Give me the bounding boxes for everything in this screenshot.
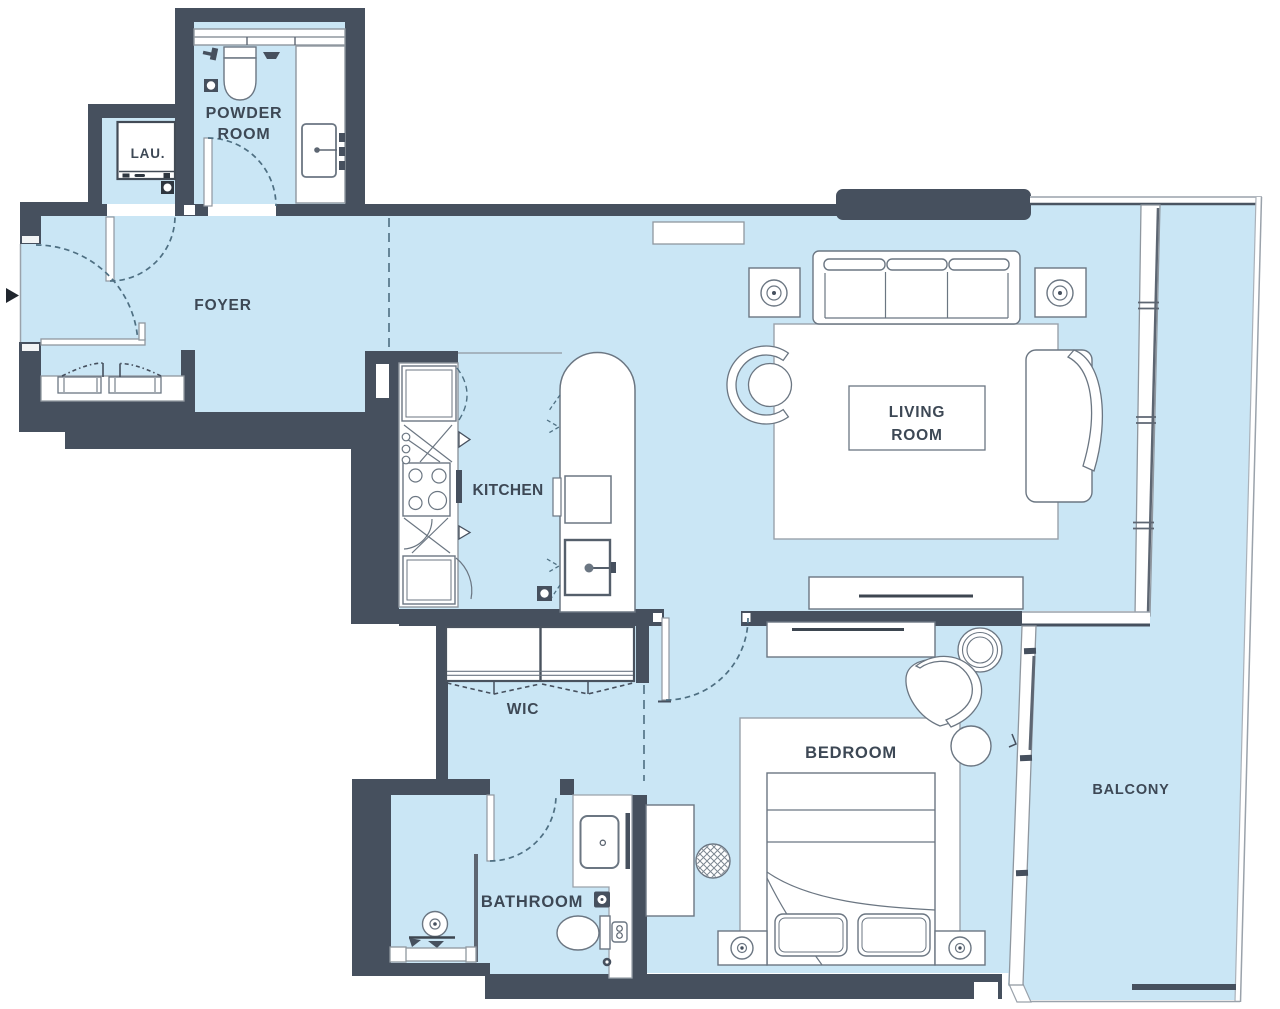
svg-text:LAU.: LAU. — [131, 146, 166, 161]
svg-text:FOYER: FOYER — [194, 297, 251, 314]
svg-text:POWDER: POWDER — [206, 105, 283, 122]
svg-text:WIC: WIC — [507, 701, 540, 718]
svg-text:LIVING: LIVING — [889, 404, 945, 421]
svg-text:ROOM: ROOM — [218, 126, 271, 143]
svg-text:KITCHEN: KITCHEN — [473, 482, 544, 499]
svg-text:ROOM: ROOM — [891, 427, 942, 444]
svg-text:BATHROOM: BATHROOM — [481, 893, 583, 911]
svg-text:BEDROOM: BEDROOM — [805, 744, 897, 762]
svg-text:BALCONY: BALCONY — [1092, 782, 1169, 798]
